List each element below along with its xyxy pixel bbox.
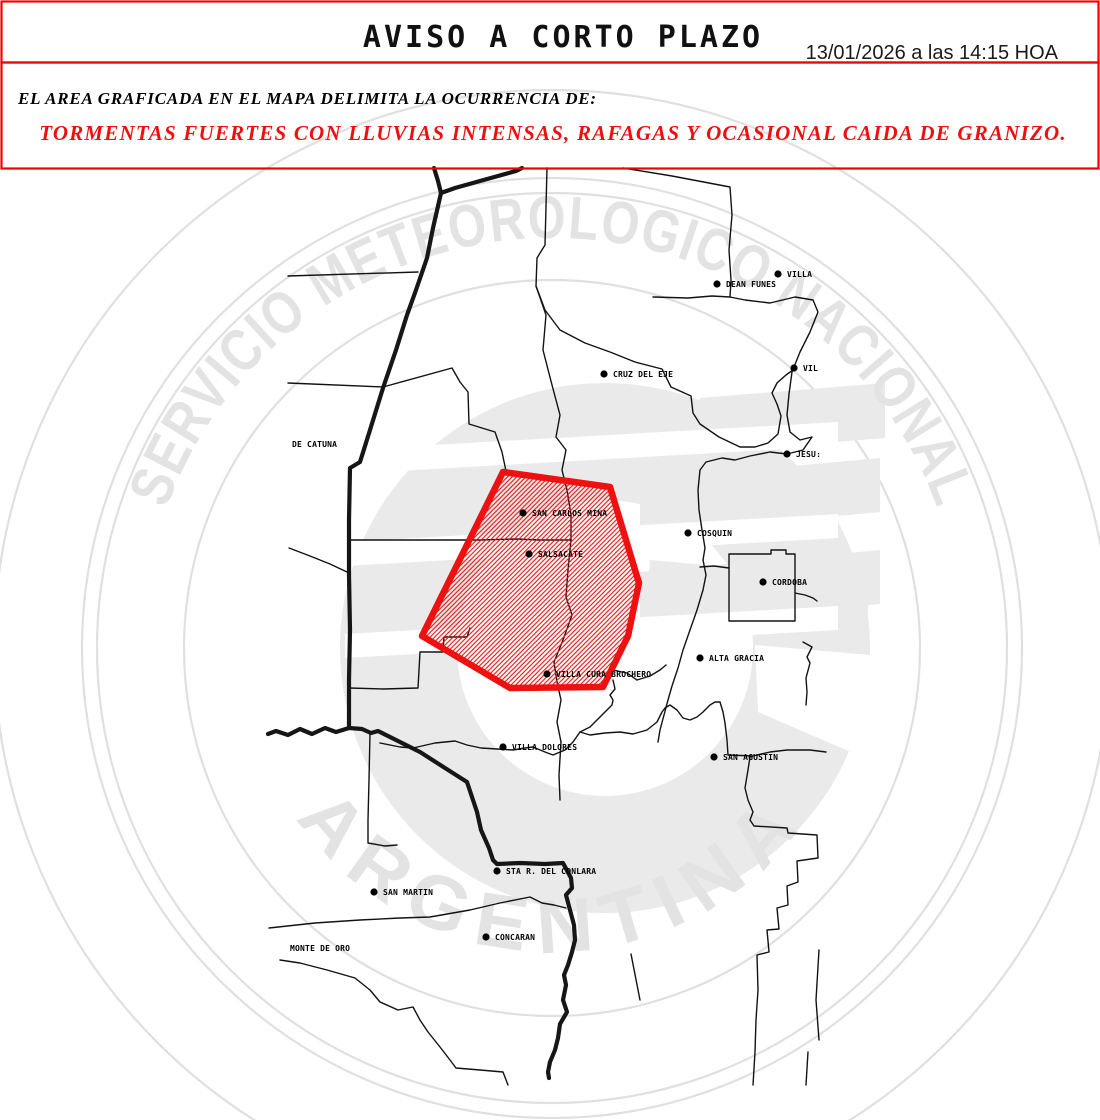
border-line [288, 383, 383, 387]
city: VILLA DOLORES [499, 743, 577, 752]
city: SAN CARLOS MINA [519, 509, 607, 518]
city-dot [482, 933, 489, 940]
city-dot [493, 867, 500, 874]
border-line [280, 960, 508, 1085]
city-label: SAN MARTIN [383, 888, 433, 897]
border-line [289, 548, 347, 572]
city-dot [543, 670, 550, 677]
city-label: SALSACATE [538, 550, 583, 559]
issue-datetime: 13/01/2026 a las 14:15 HOA [806, 42, 1059, 64]
city-label: VILLA CURA BROCHERO [556, 670, 651, 679]
city-label: SAN AGUSTIN [723, 753, 778, 762]
city-label: CRUZ DEL EJE [613, 370, 673, 379]
city: VILLA CURA BROCHERO [543, 670, 651, 679]
city-dot [790, 364, 797, 371]
city-label: CONCARAN [495, 933, 535, 942]
notice-intro-text: EL AREA GRAFICADA EN EL MAPA DELIMITA LA… [17, 89, 597, 108]
city-label: CORDOBA [772, 578, 807, 587]
city-dot [684, 529, 691, 536]
region-label: DE CATUNA [292, 440, 337, 449]
city-dot [713, 280, 720, 287]
city-dot [525, 550, 532, 557]
notice-warning-text: TORMENTAS FUERTES CON LLUVIAS INTENSAS, … [39, 121, 1067, 145]
page-title: AVISO A CORTO PLAZO [363, 20, 763, 55]
city-dot [499, 743, 506, 750]
city-label: JESU: [796, 450, 821, 459]
city-dot [774, 270, 781, 277]
province-border-segment [434, 168, 441, 193]
city: STA R. DEL CONLARA [493, 867, 596, 876]
city-label: ALTA GRACIA [709, 654, 764, 663]
city-label: STA R. DEL CONLARA [506, 867, 596, 876]
city-label: DEAN FUNES [726, 280, 776, 289]
header-notice-box-border [2, 63, 1099, 169]
city-dot [710, 753, 717, 760]
border-line [816, 950, 819, 1040]
border-line [631, 954, 640, 1000]
bulletin-canvas: SERVICIO METEOROLOGICO NACIONAL ARGENTIN… [0, 0, 1100, 1120]
city-dot [759, 578, 766, 585]
border-line [806, 1052, 808, 1085]
city-dot [600, 370, 607, 377]
city-dot [370, 888, 377, 895]
city-label: VIL [803, 364, 818, 373]
city-label: VILLA [787, 270, 812, 279]
city: CRUZ DEL EJE [600, 370, 673, 379]
region-label: MONTE DE ORO [290, 944, 350, 953]
city-dot [783, 450, 790, 457]
city-label: SAN CARLOS MINA [532, 509, 607, 518]
aviso-corto-plazo-bulletin: SERVICIO METEOROLOGICO NACIONAL ARGENTIN… [0, 0, 1100, 1120]
province-border-segment [268, 728, 349, 735]
city-dot [519, 509, 526, 516]
city-label: VILLA DOLORES [512, 743, 577, 752]
header: AVISO A CORTO PLAZO 13/01/2026 a las 14:… [2, 2, 1099, 169]
city-dot [696, 654, 703, 661]
city-label: COSQUIN [697, 529, 732, 538]
